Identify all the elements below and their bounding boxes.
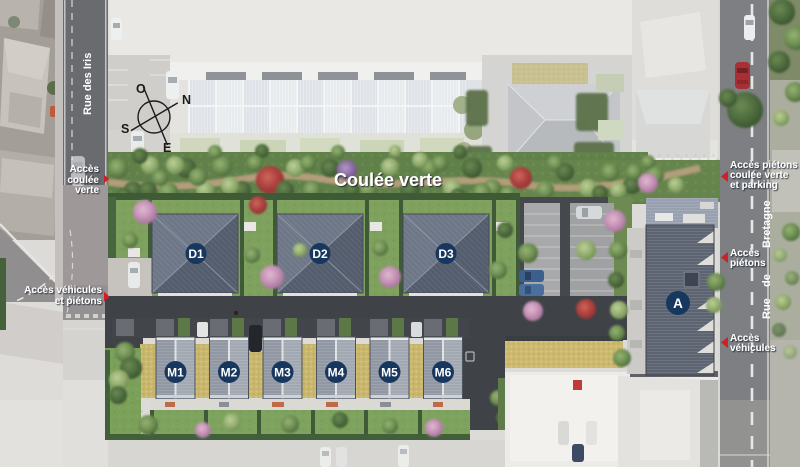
svg-text:M6: M6 [435,365,452,379]
svg-text:M3: M3 [274,365,291,379]
svg-text:D3: D3 [438,247,454,261]
svg-text:M5: M5 [381,365,398,379]
svg-text:Coulée verte: Coulée verte [334,170,442,190]
svg-text:et parking: et parking [730,180,778,191]
svg-text:E: E [163,141,171,155]
svg-text:véhicules: véhicules [730,343,776,354]
svg-text:Rue des Iris: Rue des Iris [82,53,94,115]
svg-text:Bretagne: Bretagne [761,200,773,248]
svg-text:O: O [136,82,146,96]
svg-text:Rue: Rue [761,298,773,319]
svg-text:M1: M1 [167,365,184,379]
svg-text:de: de [761,274,773,287]
svg-text:D1: D1 [188,247,204,261]
svg-text:A: A [673,296,683,311]
svg-text:et piétons: et piétons [55,296,103,307]
svg-text:M2: M2 [221,365,238,379]
svg-text:M4: M4 [328,365,345,379]
svg-text:verte: verte [75,185,99,196]
svg-text:Accès: Accès [70,164,100,175]
svg-text:Accès véhicules: Accès véhicules [24,285,102,296]
svg-text:piétons: piétons [730,258,766,269]
svg-text:N: N [182,93,191,107]
svg-text:D2: D2 [312,247,328,261]
svg-text:S: S [121,122,129,136]
